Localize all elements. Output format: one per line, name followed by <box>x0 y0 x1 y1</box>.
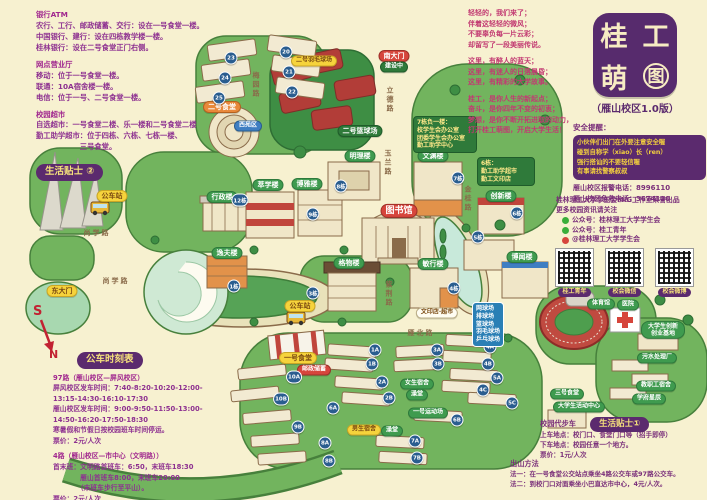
map-label-公车站: 公车站 <box>97 190 128 202</box>
map-label-公车站: 公车站 <box>285 300 316 312</box>
poem-line: 不要辜负每一片云彩； <box>468 29 600 40</box>
building-badge-6B: 6B <box>451 414 464 427</box>
phone-line: 雁山校区报警电话：8996110 <box>573 183 706 194</box>
logo-char: 图 <box>643 63 669 89</box>
bus-line: 97路（雁山校区—屏风校区） <box>53 373 251 384</box>
building-badge-7B: 7B <box>411 452 424 465</box>
map-label-一号运动场: 一号运动场 <box>408 408 448 419</box>
tips2-section: 网点营业厅移动：位于一号食堂一楼。联通：10A宿舍楼一楼。电信：位于一号、二号食… <box>36 60 278 104</box>
tips1-line: 下车地点：校园任意一个地方。 <box>540 441 707 451</box>
map-label-学府星辰: 学府星辰 <box>632 394 666 405</box>
building-badge-22: 22 <box>286 86 299 99</box>
building-badge-3栋: 3栋 <box>306 287 319 300</box>
tips2-badge: 生活贴士 ② <box>36 164 103 180</box>
wechat-icon <box>562 227 569 234</box>
map-info-line: 排球场 <box>476 313 500 321</box>
poem-line: 这里，有醉人的蓝天； <box>468 56 600 67</box>
social-account: 公众号：桂林理工大学学生会 <box>562 216 707 226</box>
building-badge-7栋: 7栋 <box>451 172 464 185</box>
building-badge-2A: 2A <box>376 376 389 389</box>
map-label-三号食堂: 三号食堂 <box>550 389 584 400</box>
poem-stanza: 轻轻的，我们来了；伴着这轻轻的微风；不要辜负每一片云彩；却留写了一段美丽传说。 <box>468 8 600 50</box>
building-badge-21: 21 <box>283 66 296 79</box>
building-badge-2B: 2B <box>383 392 396 405</box>
map-label-东大门: 东大门 <box>47 285 78 297</box>
map-label-博雅楼: 博雅楼 <box>292 178 323 190</box>
tips2-line: 电信：位于一号、二号食堂一楼。 <box>36 93 278 104</box>
exit-line: 法二：到校门口对面乘坐小巴直达市中心，4元/人次。 <box>510 480 707 490</box>
poem-line: 这里，有精彩的大学故事。 <box>468 77 600 88</box>
credits-block: 桂林理工大学学生会MIG工作室荣誉出品 更多校园资讯请关注 公众号：桂林理工大学… <box>556 196 707 297</box>
road-label-立德路: 立德路 <box>385 87 395 114</box>
qr-label: 校会微信 <box>608 288 640 297</box>
map-label-澡堂: 澡堂 <box>406 390 428 401</box>
tips2-line: 中国银行、建行：设在四栋教学楼一楼。 <box>36 32 278 43</box>
map-label-二号篮球场: 二号篮球场 <box>338 125 383 137</box>
road-label-金桂路: 金桂路 <box>463 186 473 213</box>
bus-schedule-lines: 97路（雁山校区—屏风校区）屏风校区发车时间：7:40-8:20-10:20-1… <box>53 373 251 500</box>
map-label-大学生活动中心: 大学生活动中心 <box>553 402 605 413</box>
social-account: 公众号：桂工青年 <box>562 226 707 236</box>
logo-char: 桂 <box>601 15 628 54</box>
building-badge-5栋: 5栋 <box>471 231 484 244</box>
qr-label: 桂工青年 <box>558 288 590 297</box>
tips2-line: 勤工助学超市：位于四栋、六栋、七栋一楼、 <box>36 131 278 142</box>
road-label-尚学路: 尚学路 <box>103 276 130 286</box>
follow-text: 更多校园资讯请关注 <box>556 206 707 216</box>
building-badge-20: 20 <box>280 46 293 59</box>
map-version-subtitle: （雁山校区1.0版） <box>576 100 694 115</box>
building-badge-6栋: 6栋 <box>510 207 523 220</box>
map-label-建设中: 建设中 <box>380 62 408 73</box>
social-account-label: 公众号：桂工青年 <box>572 226 626 236</box>
tips2-section: 银行ATM农行、工行、邮政储蓄、交行：设在一号食堂一楼。中国银行、建行：设在四栋… <box>36 10 278 54</box>
map-label-污水处理厂: 污水处理厂 <box>637 353 677 364</box>
building-badge-1栋: 1栋 <box>227 280 240 293</box>
poem-stanza: 这里，有醉人的蓝天；这里，有迷人的日落晨昏；这里，有精彩的大学故事。 <box>468 56 600 88</box>
road-label-玉兰路: 玉兰路 <box>383 150 393 177</box>
bus-line: 4路（雁山校区—市中心（文明路）） <box>53 451 251 462</box>
qr-code <box>656 249 693 286</box>
bus-schedule-badge: 公车时刻表 <box>77 352 143 369</box>
map-label-澡堂: 澡堂 <box>381 426 403 437</box>
building-badge-4C: 4C <box>477 384 490 397</box>
building-badge-1B: 1B <box>366 358 379 371</box>
map-info-line: 校学生会办公室 <box>417 127 473 135</box>
app-logo: 桂 工 萌 图 <box>593 13 677 97</box>
map-label-博闻楼: 博闻楼 <box>507 251 538 263</box>
map-info-line: 乒乓球场 <box>476 336 500 344</box>
safety-block: 安全提醒： 小伙伴们出门在外要注意安全喔碰到自称学（xiao）长（ren）强行搭… <box>573 122 706 205</box>
bus-line: 票价：2元/人次 <box>53 436 251 447</box>
qr-item: 桂工青年 <box>556 249 593 297</box>
map-info-line: 勤工助学超市 <box>481 168 531 176</box>
building-badge-9栋: 9栋 <box>306 208 319 221</box>
building-badge-7A: 7A <box>409 435 422 448</box>
bus-line: 首末班：文明路首班车：6:50，末班车18:30 <box>53 462 251 473</box>
poem-line: 轻轻的，我们来了； <box>468 8 600 19</box>
logo-char: 萌 <box>601 57 628 96</box>
building-badge-10B: 10B <box>273 393 289 406</box>
bus-line: 雁山首班车8:00，末班车20:00 <box>53 473 251 484</box>
building-badge-3B: 3B <box>432 358 445 371</box>
map-label-教职工宿舍: 教职工宿舍 <box>636 381 676 392</box>
map-label-明理楼: 明理楼 <box>345 150 376 162</box>
map-label-图书馆: 图书馆 <box>380 204 417 218</box>
tips2-section: 校园超市自选超市：一号食堂二楼、乐一楼和二号食堂二楼勤工助学超市：位于四栋、六栋… <box>36 110 278 154</box>
logo-char: 工 <box>643 15 670 54</box>
map-label-格物楼: 格物楼 <box>334 257 365 269</box>
tips2-line: 三号食堂。 <box>36 142 278 153</box>
qr-code <box>556 249 593 286</box>
safety-line: 碰到自称学（xiao）长（ren） <box>577 148 702 158</box>
tips2-line: 移动：位于一号食堂一楼。 <box>36 71 278 82</box>
map-info-line: 7栋负一楼： <box>417 119 473 127</box>
building-badge-6A: 6A <box>327 402 340 415</box>
safety-line: 小伙伴们出门在外要注意安全喔 <box>577 138 702 148</box>
poem-line: 却留写了一段美丽传说。 <box>468 40 600 51</box>
map-label-医院: 医院 <box>617 300 639 311</box>
weibo-icon <box>562 237 569 244</box>
bus-line: 雁山校区发车时间：9:00-9:50-11:50-13:00- <box>53 404 251 415</box>
qr-label: 校会微博 <box>658 288 690 297</box>
map-label-体育馆: 体育馆 <box>587 299 615 310</box>
building-badge-9B: 9B <box>292 421 305 434</box>
produced-by: 桂林理工大学学生会MIG工作室荣誉出品 <box>556 196 707 206</box>
safety-line: 强行搭讪的不要轻信喔 <box>577 158 702 168</box>
social-account-label: 公众号：桂林理工大学学生会 <box>572 216 660 226</box>
exit-methods-title: 出山方法 <box>510 459 707 470</box>
exit-methods-block: 出山方法 法一：在一号食堂公交站点乘坐4路公交车或97路公交车。法二：到校门口对… <box>510 459 707 489</box>
tips2-heading: 银行ATM <box>36 10 278 21</box>
road-label-尚学路: 尚学路 <box>84 228 111 238</box>
bus-line: 票价：2元/人次 <box>53 494 251 500</box>
building-badge-5C: 5C <box>506 397 519 410</box>
map-label-女生宿舍: 女生宿舍 <box>400 379 434 390</box>
compass-north-label: N <box>49 348 58 361</box>
bus-line: 屏风校区发车时间：7:40-8:20-10:20-12:00- <box>53 383 251 394</box>
map-label-敏行楼: 敏行楼 <box>418 258 449 270</box>
map-label-男生宿舍: 男生宿舍 <box>347 425 381 436</box>
map-info-line: 6栋： <box>481 160 531 168</box>
map-label-创新楼: 创新楼 <box>486 190 517 202</box>
bus-line: 14:50-16:20-17:50-18:30 <box>53 415 251 426</box>
tips2-line: 自选超市：一号食堂二楼、乐一楼和二号食堂二楼 <box>36 120 278 131</box>
tips-block-1: 生活贴士① 校园代步车 上车地点：校门口、食堂门口等（招手即停）下车地点：校园任… <box>540 419 707 460</box>
safety-heading: 安全提醒： <box>573 122 706 133</box>
campus-cart-lines: 上车地点：校门口、食堂门口等（招手即停）下车地点：校园任意一个地方。票价：1元/… <box>540 431 707 461</box>
map-label-邮政储蓄: 邮政储蓄 <box>297 365 331 376</box>
bus-schedule-block: 公车时刻表 97路（雁山校区—屏风校区）屏风校区发车时间：7:40-8:20-1… <box>53 352 251 500</box>
exit-methods-lines: 法一：在一号食堂公交站点乘坐4路公交车或97路公交车。法二：到校门口对面乘坐小巴… <box>510 470 707 490</box>
safety-line: 有事请找警察叔叔 <box>577 167 702 177</box>
map-label-一号食堂: 一号食堂 <box>279 352 317 364</box>
map-label-萃学楼: 萃学楼 <box>253 179 284 191</box>
tips2-heading: 网点营业厅 <box>36 60 278 71</box>
tips2-line: 联通：10A宿舍楼一楼。 <box>36 82 278 93</box>
building-badge-4B: 4B <box>482 358 495 371</box>
building-badge-4栋: 4栋 <box>447 282 460 295</box>
bus-line: 13:15-14:30-16:10-17:30 <box>53 394 251 405</box>
safety-notice-box: 小伙伴们出门在外要注意安全喔碰到自称学（xiao）长（ren）强行搭讪的不要轻信… <box>573 135 706 180</box>
map-label-二号羽毛球场: 二号羽毛球场 <box>291 56 337 67</box>
tips-block-2: 银行ATM农行、工行、邮政储蓄、交行：设在一号食堂一楼。中国银行、建行：设在四栋… <box>36 10 278 181</box>
tips1-badge: 生活贴士① <box>590 417 649 432</box>
map-label-逸夫楼: 逸夫楼 <box>212 247 243 259</box>
map-info-box-2: 网球场排球场篮球场羽毛球场乒乓球场 <box>472 302 504 347</box>
bus-line: （末班车步行至平山）。 <box>53 483 251 494</box>
wechat-icon <box>562 217 569 224</box>
poem-line: 伴着这轻轻的微风； <box>468 19 600 30</box>
qr-item: 校会微博 <box>656 249 693 297</box>
exit-line: 法一：在一号食堂公交站点乘坐4路公交车或97路公交车。 <box>510 470 707 480</box>
social-account-label: @桂林理工大学学生会 <box>572 235 640 245</box>
map-label-大学生创新创业基地: 大学生创新创业基地 <box>641 321 685 339</box>
qr-code <box>606 249 643 286</box>
map-info-box-1: 6栋：勤工助学超市勤工文印店 <box>477 157 535 186</box>
qr-row: 桂工青年 校会微信 校会微博 <box>556 249 707 297</box>
building-badge-8B: 8B <box>323 455 336 468</box>
map-info-line: 网球场 <box>476 305 500 313</box>
social-account: @桂林理工大学学生会 <box>562 235 707 245</box>
building-badge-10A: 10A <box>286 371 302 384</box>
building-badge-3A: 3A <box>431 344 444 357</box>
map-info-line: 勤工助学中心 <box>417 142 473 150</box>
tips2-line: 农行、工行、邮政储蓄、交行：设在一号食堂一楼。 <box>36 21 278 32</box>
bus-line: 寒暑假和节假日按校园班车时间停运。 <box>53 425 251 436</box>
tips1-line: 上车地点：校门口、食堂门口等（招手即停） <box>540 431 707 441</box>
campus-map-poster: 南大门建设中二号篮球场二号羽毛球场二号食堂西苑区公车站公车站东大门行政楼逸夫楼萃… <box>0 0 707 500</box>
social-accounts: 公众号：桂林理工大学学生会公众号：桂工青年@桂林理工大学学生会 <box>556 216 707 246</box>
tips2-body: 银行ATM农行、工行、邮政储蓄、交行：设在一号食堂一楼。中国银行、建行：设在四栋… <box>36 10 278 153</box>
tips2-heading: 校园超市 <box>36 110 278 121</box>
road-label-紫荆路: 紫荆路 <box>384 281 394 308</box>
building-badge-8栋: 8栋 <box>334 180 347 193</box>
road-label-雁北路: 雁北路 <box>408 328 435 338</box>
map-label-南大门: 南大门 <box>379 50 410 62</box>
compass-south-label: S <box>33 304 42 319</box>
building-badge-5A: 5A <box>491 372 504 385</box>
qr-item: 校会微信 <box>606 249 643 297</box>
poem-line: 这里，有迷人的日落晨昏； <box>468 67 600 78</box>
building-badge-8A: 8A <box>319 437 332 450</box>
map-info-line: 勤工文印店 <box>481 176 531 184</box>
building-badge-12栋: 12栋 <box>231 194 248 207</box>
building-badge-1A: 1A <box>369 344 382 357</box>
tips2-line: 桂林银行：设在二号食堂正门右侧。 <box>36 43 278 54</box>
map-label-文印店·超市: 文印店·超市 <box>416 308 458 319</box>
